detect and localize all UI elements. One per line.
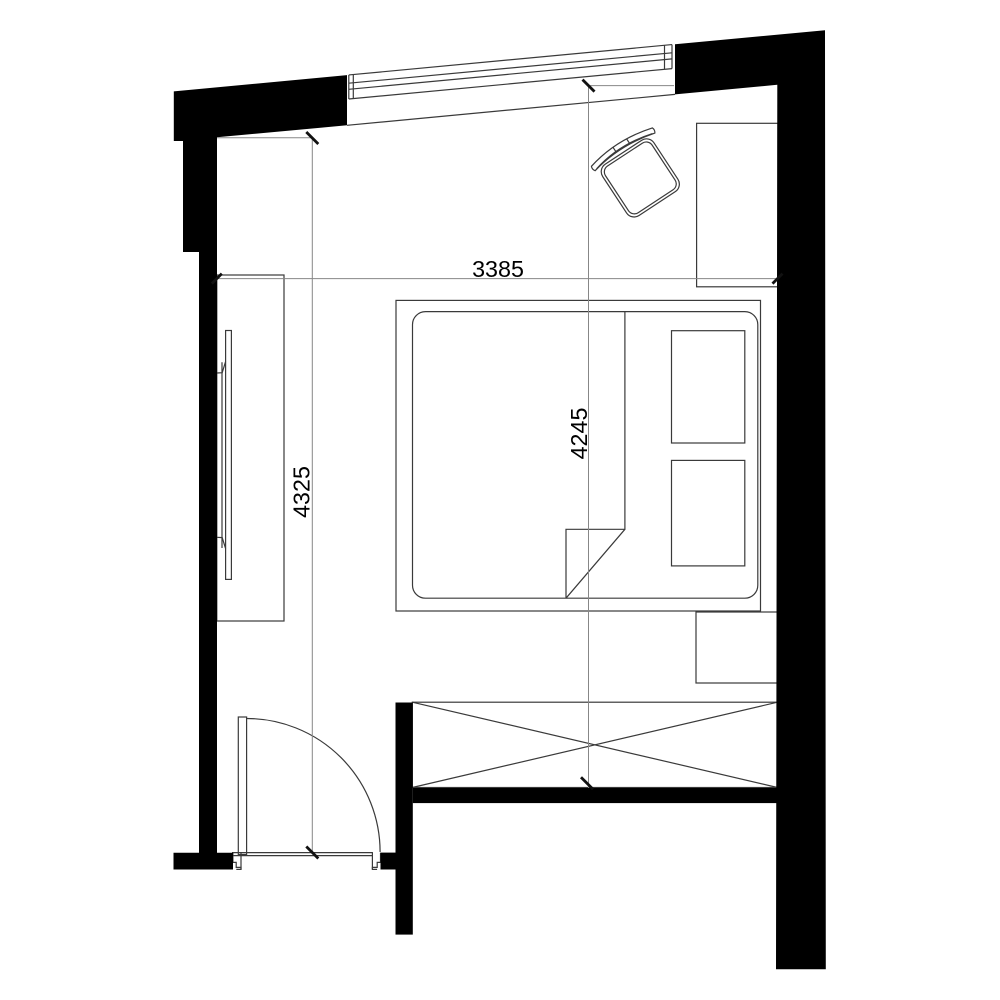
svg-text:4325: 4325 <box>288 466 314 518</box>
svg-text:3385: 3385 <box>472 256 524 282</box>
svg-text:4245: 4245 <box>566 408 592 460</box>
